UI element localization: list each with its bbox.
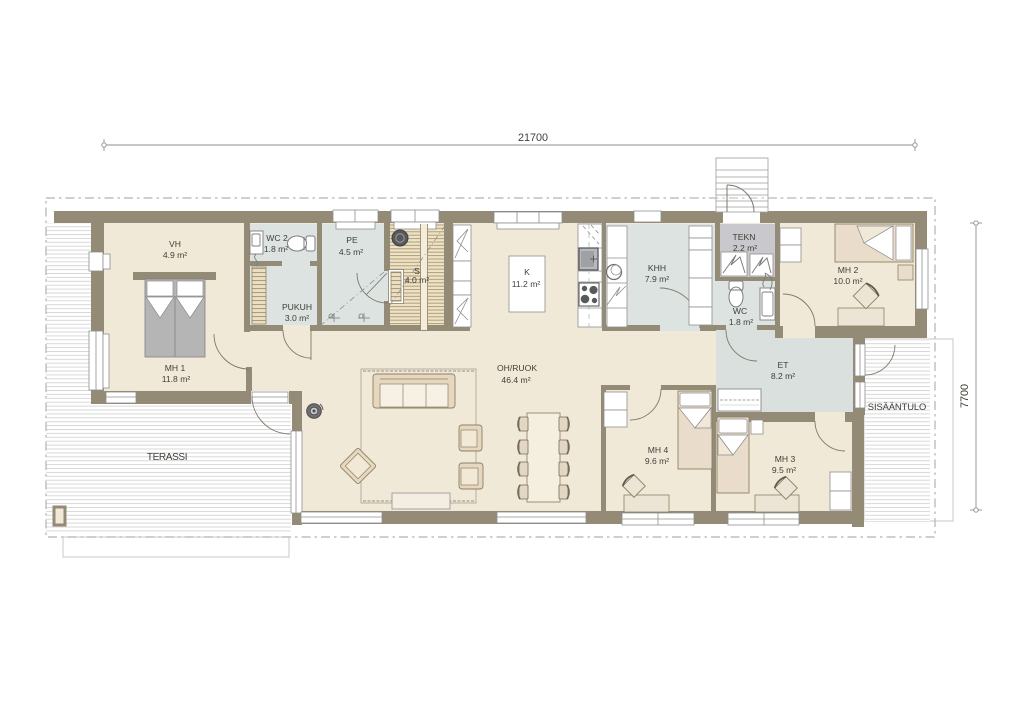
svg-text:KHH: KHH bbox=[648, 263, 666, 273]
svg-text:11.2 m²: 11.2 m² bbox=[512, 279, 541, 289]
svg-text:10.0 m²: 10.0 m² bbox=[833, 276, 862, 286]
svg-text:K: K bbox=[524, 267, 530, 277]
svg-text:1.8 m²: 1.8 m² bbox=[264, 244, 288, 254]
svg-text:WC: WC bbox=[733, 306, 747, 316]
svg-text:3.0 m²: 3.0 m² bbox=[285, 313, 309, 323]
svg-text:21700: 21700 bbox=[518, 132, 548, 144]
svg-text:WC 2: WC 2 bbox=[266, 233, 288, 243]
svg-text:ET: ET bbox=[778, 360, 790, 370]
svg-text:PE: PE bbox=[346, 235, 358, 245]
svg-text:2.2 m²: 2.2 m² bbox=[733, 243, 757, 253]
svg-text:VH: VH bbox=[169, 239, 181, 249]
svg-text:MH 3: MH 3 bbox=[775, 454, 796, 464]
svg-text:9.5 m²: 9.5 m² bbox=[772, 465, 796, 475]
svg-text:TERASSI: TERASSI bbox=[147, 452, 187, 463]
svg-text:9.6 m²: 9.6 m² bbox=[645, 456, 669, 466]
svg-text:4.9 m²: 4.9 m² bbox=[163, 250, 187, 260]
svg-text:OH/RUOK: OH/RUOK bbox=[497, 363, 537, 373]
svg-text:46.4 m²: 46.4 m² bbox=[501, 375, 530, 385]
svg-text:TEKN: TEKN bbox=[733, 232, 756, 242]
svg-text:MH 1: MH 1 bbox=[165, 363, 186, 373]
svg-text:7.9 m²: 7.9 m² bbox=[645, 274, 669, 284]
svg-text:PUKUH: PUKUH bbox=[282, 302, 312, 312]
svg-text:1.8 m²: 1.8 m² bbox=[729, 317, 753, 327]
svg-text:MH 4: MH 4 bbox=[648, 445, 669, 455]
svg-text:8.2 m²: 8.2 m² bbox=[771, 371, 795, 381]
svg-text:SISÄÄNTULO: SISÄÄNTULO bbox=[868, 401, 926, 412]
svg-text:4.5 m²: 4.5 m² bbox=[339, 247, 363, 257]
svg-text:11.8 m²: 11.8 m² bbox=[162, 374, 191, 384]
svg-text:7700: 7700 bbox=[959, 384, 971, 408]
svg-text:MH 2: MH 2 bbox=[838, 265, 859, 275]
svg-text:4.0 m²: 4.0 m² bbox=[405, 275, 429, 285]
